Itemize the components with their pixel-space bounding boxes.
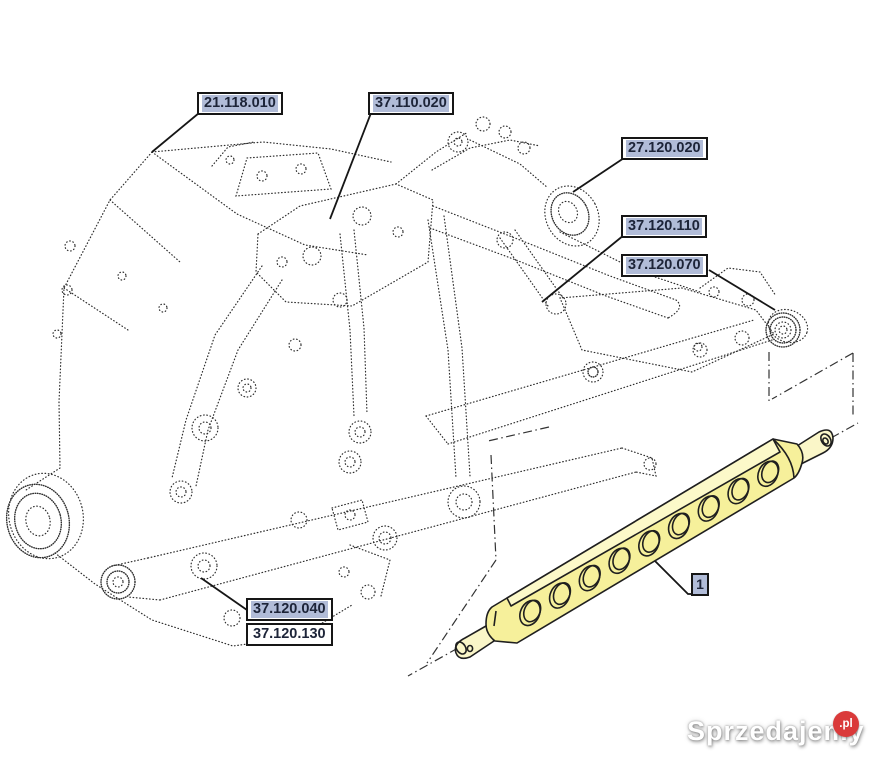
part-label-37-120-110[interactable]: 37.120.110 xyxy=(621,215,707,238)
drawbar-part-highlighted[interactable] xyxy=(454,430,834,658)
part-label-37-120-040[interactable]: 37.120.040 xyxy=(246,598,333,621)
part-label-37-120-070[interactable]: 37.120.070 xyxy=(621,254,708,277)
drawbar-bevel xyxy=(507,439,780,606)
part-label-text: 37.120.110 xyxy=(626,218,702,235)
rockshaft-assembly xyxy=(170,117,680,518)
watermark-pl-badge: .pl xyxy=(833,711,859,737)
part-label-37-120-130[interactable]: 37.120.130 xyxy=(246,623,333,646)
axle-frame-and-ball-joint xyxy=(426,268,812,444)
part-label-text: 27.120.020 xyxy=(626,140,703,157)
part-label-text: 37.120.130 xyxy=(251,626,328,643)
part-label-text: 37.110.020 xyxy=(373,95,449,112)
callout-1-label[interactable]: 1 xyxy=(691,573,709,596)
part-label-text: 37.120.070 xyxy=(626,257,703,274)
phantom-alignment-lines xyxy=(408,352,858,676)
parts-diagram-page: 21.118.010 37.110.020 27.120.020 37.120.… xyxy=(0,0,873,765)
drawbar-body xyxy=(486,439,803,643)
pto-bore xyxy=(0,478,77,565)
pto-bore-inner xyxy=(0,465,92,566)
part-label-27-120-020[interactable]: 27.120.020 xyxy=(621,137,708,160)
part-label-37-110-020[interactable]: 37.110.020 xyxy=(368,92,454,115)
part-label-text: 37.120.040 xyxy=(251,601,328,618)
part-label-text: 21.118.010 xyxy=(202,95,278,112)
part-label-21-118-010[interactable]: 21.118.010 xyxy=(197,92,283,115)
lift-rod-link xyxy=(497,230,566,314)
transmission-housing-outline xyxy=(26,142,397,646)
